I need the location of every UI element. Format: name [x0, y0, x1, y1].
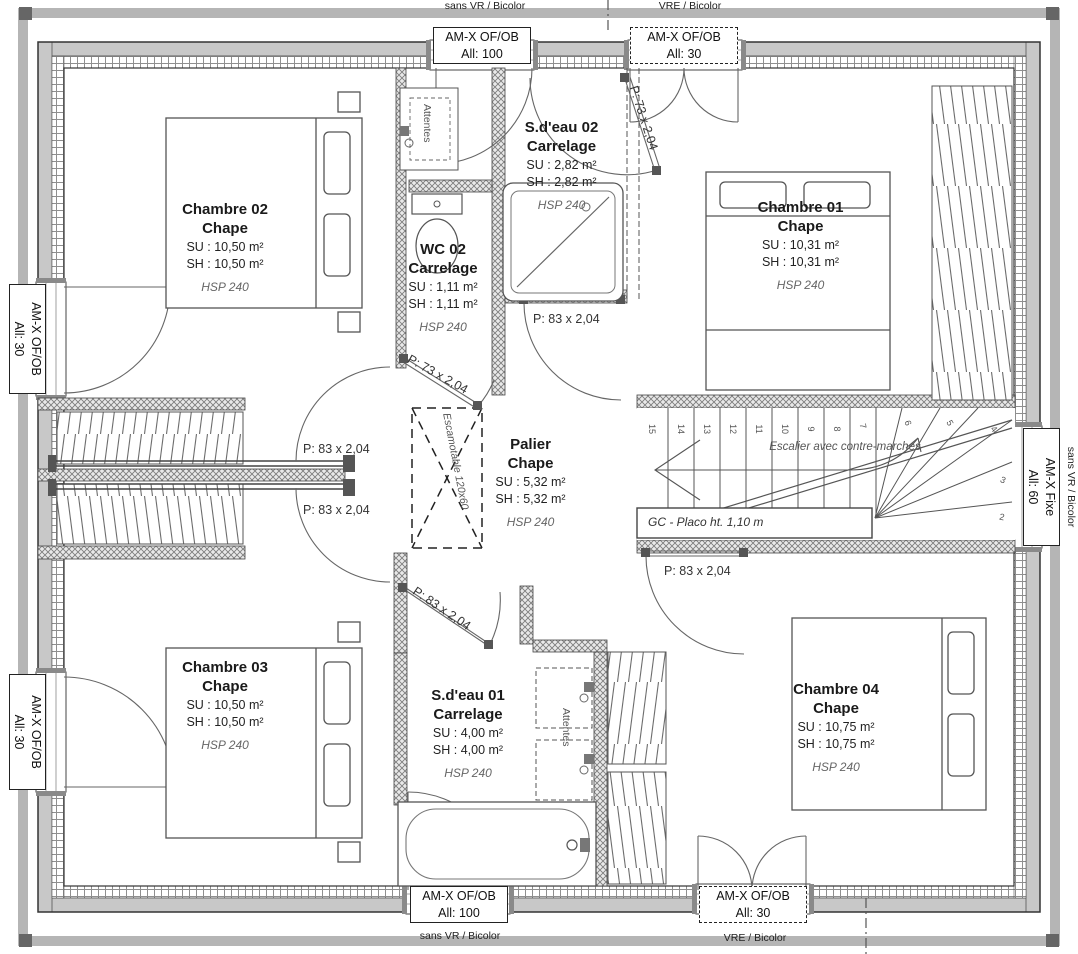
window-model: AM-X OF/OB [633, 29, 735, 46]
room-finish: Carrelage [494, 137, 629, 156]
window-label-right1: AM-X Fixe All: 60 [1023, 428, 1060, 546]
room-chambre01: Chambre 01 Chape SU : 10,31 m² SH : 10,3… [718, 198, 883, 294]
room-name: S.d'eau 02 [494, 118, 629, 137]
room-finish: Chape [752, 699, 920, 718]
room-su: SU : 10,50 m² [145, 239, 305, 255]
window-caption-top1: sans VR / Bicolor [420, 0, 550, 12]
room-name: Chambre 01 [718, 198, 883, 217]
room-hsp: HSP 240 [393, 320, 493, 335]
floor-plan: Chambre 02 Chape SU : 10,50 m² SH : 10,5… [0, 0, 1078, 954]
room-name: Palier [478, 435, 583, 454]
room-hsp: HSP 240 [145, 738, 305, 753]
window-caption-top2: VRE / Bicolor [625, 0, 755, 12]
window-label-top2: AM-X OF/OB All: 30 [630, 27, 738, 64]
room-sh: SH : 1,11 m² [393, 296, 493, 312]
window-model: AM-X OF/OB [436, 29, 528, 46]
window-sill: All: 30 [10, 677, 27, 787]
step-number: 12 [728, 423, 738, 435]
window-label-left1: AM-X OF/OB All: 30 [9, 284, 46, 394]
door-label-p83-ch04: P: 83 x 2,04 [664, 564, 731, 578]
attentes-note-bottom: Attentes [560, 708, 572, 747]
room-finish: Chape [718, 217, 883, 236]
step-number: 14 [676, 423, 686, 435]
room-hsp: HSP 240 [478, 515, 583, 530]
room-sh: SH : 10,50 m² [145, 256, 305, 272]
room-name: Chambre 02 [145, 200, 305, 219]
room-su: SU : 10,50 m² [145, 697, 305, 713]
room-name: S.d'eau 01 [398, 686, 538, 705]
window-label-left2: AM-X OF/OB All: 30 [9, 674, 46, 790]
window-caption-bottom2: VRE / Bicolor [690, 932, 820, 944]
stairs-label: Escalier avec contre-marches [740, 441, 950, 453]
room-finish: Carrelage [398, 705, 538, 724]
room-sh: SH : 10,50 m² [145, 714, 305, 730]
room-sh: SH : 5,32 m² [478, 491, 583, 507]
step-number: 9 [806, 423, 816, 435]
step-number: 11 [754, 423, 764, 435]
window-caption-bottom1: sans VR / Bicolor [395, 930, 525, 942]
room-su: SU : 5,32 m² [478, 474, 583, 490]
room-sh: SH : 4,00 m² [398, 742, 538, 758]
window-label-top1: AM-X OF/OB All: 100 [433, 27, 531, 64]
step-number: 10 [780, 423, 790, 435]
window-sill: All: 30 [702, 905, 804, 922]
room-chambre04: Chambre 04 Chape SU : 10,75 m² SH : 10,7… [752, 680, 920, 776]
room-hsp: HSP 240 [494, 198, 629, 213]
door-label-p83-ch03: P: 83 x 2,04 [303, 503, 370, 517]
room-su: SU : 10,31 m² [718, 237, 883, 253]
room-sdeau01: S.d'eau 01 Carrelage SU : 4,00 m² SH : 4… [398, 686, 538, 782]
room-su: SU : 10,75 m² [752, 719, 920, 735]
window-label-bottom2: AM-X OF/OB All: 30 [699, 886, 807, 923]
window-sill: All: 30 [633, 46, 735, 63]
window-model: AM-X OF/OB [413, 888, 505, 905]
room-finish: Chape [145, 677, 305, 696]
room-chambre03: Chambre 03 Chape SU : 10,50 m² SH : 10,5… [145, 658, 305, 754]
window-sill: All: 100 [413, 905, 505, 922]
window-sill: All: 60 [1024, 431, 1041, 543]
attentes-note-top: Attentes [421, 104, 433, 143]
room-name: WC 02 [393, 240, 493, 259]
room-su: SU : 1,11 m² [393, 279, 493, 295]
step-number: 15 [647, 423, 657, 435]
window-sill: All: 100 [436, 46, 528, 63]
window-model: AM-X OF/OB [27, 677, 44, 787]
room-chambre02: Chambre 02 Chape SU : 10,50 m² SH : 10,5… [145, 200, 305, 296]
room-name: Chambre 03 [145, 658, 305, 677]
stairs-guard-label: GC - Placo ht. 1,10 m [648, 515, 763, 529]
room-finish: Chape [145, 219, 305, 238]
step-number: 13 [702, 423, 712, 435]
room-wc02: WC 02 Carrelage SU : 1,11 m² SH : 1,11 m… [393, 240, 493, 336]
room-hsp: HSP 240 [752, 760, 920, 775]
room-finish: Chape [478, 454, 583, 473]
step-number: 7 [857, 419, 869, 433]
window-model: AM-X OF/OB [702, 888, 804, 905]
room-palier: Palier Chape SU : 5,32 m² SH : 5,32 m² H… [478, 435, 583, 531]
window-caption-right1: sans VR / Bicolor [1065, 432, 1077, 542]
window-model: AM-X OF/OB [27, 287, 44, 391]
room-sh: SH : 10,75 m² [752, 736, 920, 752]
room-sh: SH : 10,31 m² [718, 254, 883, 270]
step-number: 2 [995, 511, 1009, 523]
room-hsp: HSP 240 [718, 278, 883, 293]
room-hsp: HSP 240 [398, 766, 538, 781]
room-sdeau02: S.d'eau 02 Carrelage SU : 2,82 m² SH : 2… [494, 118, 629, 214]
room-finish: Carrelage [393, 259, 493, 278]
door-label-p83-ch02: P: 83 x 2,04 [303, 442, 370, 456]
window-model: AM-X Fixe [1041, 431, 1058, 543]
room-name: Chambre 04 [752, 680, 920, 699]
window-sill: All: 30 [10, 287, 27, 391]
door-label-p83-sdeau02: P: 83 x 2,04 [533, 312, 600, 326]
room-hsp: HSP 240 [145, 280, 305, 295]
room-su: SU : 4,00 m² [398, 725, 538, 741]
window-label-bottom1: AM-X OF/OB All: 100 [410, 886, 508, 923]
step-number: 8 [832, 423, 842, 435]
room-sh: SH : 2,82 m² [494, 174, 629, 190]
room-su: SU : 2,82 m² [494, 157, 629, 173]
